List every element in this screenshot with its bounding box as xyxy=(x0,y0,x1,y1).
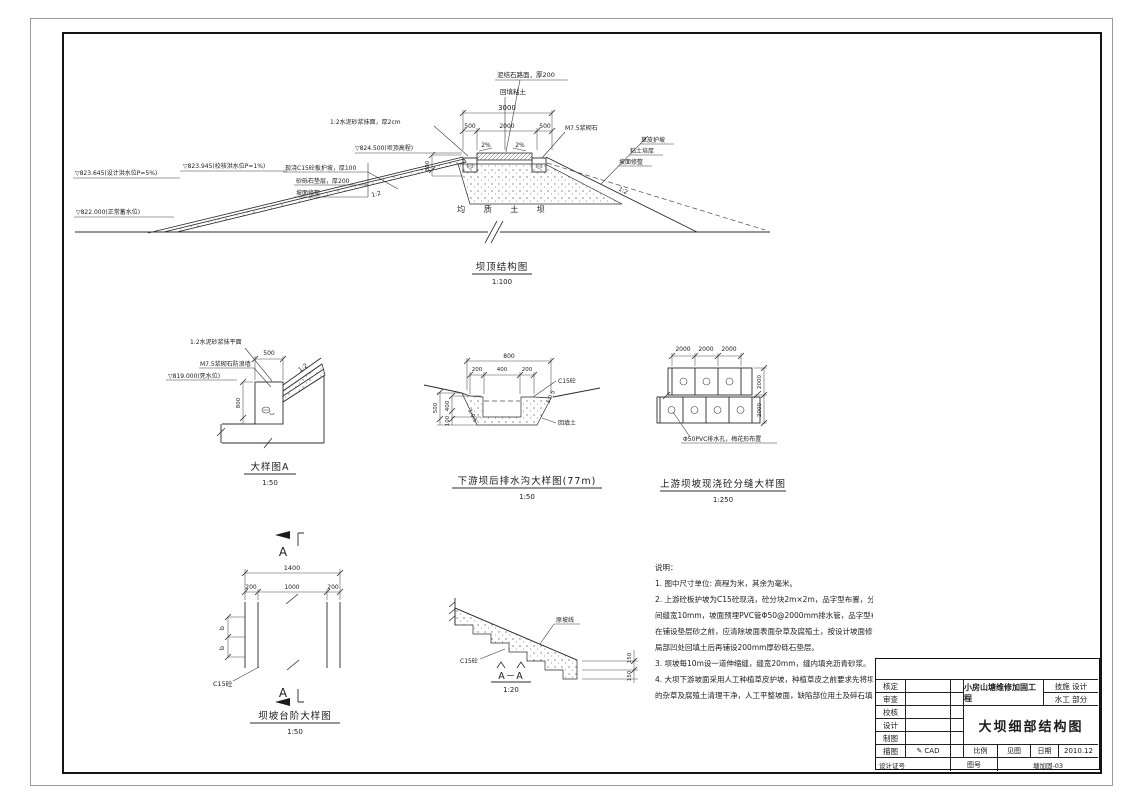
concrete-label: C15砼 xyxy=(558,377,576,385)
crest-road-surface xyxy=(477,153,532,160)
concrete-label: C15砼 xyxy=(213,679,233,688)
check-flood-level-label: ▽823.945(校核洪水位P=1%) xyxy=(183,162,265,170)
notes-line: 局部凹处回填土后再铺设200mm厚砂砾石垫层。 xyxy=(655,640,873,656)
cad-cell: ✎ CAD xyxy=(906,745,951,758)
road-surface-label: 泥结石路面，厚200 xyxy=(497,70,555,79)
dim-400-label: 400 xyxy=(497,367,508,373)
normal-level-label: ▽822.000(正常蓄水位) xyxy=(76,208,140,216)
slab-row-lower xyxy=(657,397,760,423)
drain-hole xyxy=(668,407,675,414)
dim-100-label: 100 xyxy=(445,415,451,426)
narrow-cell xyxy=(951,732,964,745)
wall-height-dim-label: 800 xyxy=(425,160,431,171)
row-label-shencha: 审查 xyxy=(876,693,906,706)
slope-ratio-label: 1:2 xyxy=(297,362,309,373)
gravel-cushion-label: 砂砾石垫层，厚200 xyxy=(296,177,350,185)
drain-hole xyxy=(737,407,744,414)
drain-hole xyxy=(703,378,710,385)
grass-protection-label: 草皮护坡 xyxy=(641,136,665,144)
dim-2000-1: 2000 xyxy=(675,346,690,353)
concrete-label: C15砼 xyxy=(460,657,478,665)
dim-200l-label: 200 xyxy=(245,584,257,591)
dim-150-1: 150 xyxy=(627,652,633,663)
dim-200r-label: 200 xyxy=(327,584,339,591)
leader-line xyxy=(233,667,259,681)
detail-a-title: 大样图A xyxy=(251,461,290,473)
dim-500-left-label: 500 xyxy=(464,123,476,130)
row-label-sheji: 设计 xyxy=(876,719,906,732)
downstream-slope-ratio-label: 1:2 xyxy=(617,186,629,197)
titleblock-top-strip xyxy=(876,659,1098,680)
drain-hole xyxy=(714,407,721,414)
break-marks xyxy=(217,428,272,448)
original-slope-label: 原坡线 xyxy=(556,616,574,624)
drain-hole xyxy=(691,407,698,414)
dim-3000-label: 3000 xyxy=(498,104,516,112)
backfill-clay-label: 回填粘土 xyxy=(500,87,527,96)
mortar-face-label: 1:2水泥砂浆抹面，厚2cm xyxy=(330,118,401,126)
row-label-heding: 核定 xyxy=(876,680,906,693)
wave-wall-label: M7.5浆砌石防浪墙 xyxy=(200,360,251,368)
slab-protection-label: 现浇C15砼板护坡，厚100 xyxy=(285,164,356,172)
leader-line xyxy=(673,412,690,437)
slab-joint-scale: 1:250 xyxy=(713,496,733,504)
narrow-cell xyxy=(951,680,964,693)
slab-joint-drawing: 2000 2000 2000 2000 2000 Φ50PVC排水孔，梅花形布置… xyxy=(657,346,786,504)
dead-water-level-label: ▽819.000(死水位) xyxy=(168,372,220,380)
notes-line: 2. 上游砼板护坡为C15砼现浇，砼分块2m×2m，品字型布置，分块 xyxy=(655,592,873,608)
dim-200l-label: 200 xyxy=(472,367,483,373)
wave-wall-section xyxy=(255,382,283,424)
narrow-cell xyxy=(951,719,964,732)
notes-line: 间缝宽10mm，坡面预埋PVC管Φ50@2000mm排水管，品字型布置， xyxy=(655,608,873,624)
dim-500-right-label: 500 xyxy=(539,123,551,130)
narrow-cell xyxy=(951,745,964,758)
steps-section-scale: 1:20 xyxy=(503,686,519,694)
dim-500-label: 500 xyxy=(263,350,275,357)
dim-150-2: 150 xyxy=(627,670,633,681)
dim-2000-3: 2000 xyxy=(721,346,736,353)
signature-cell xyxy=(906,719,951,732)
dim-2000-2: 2000 xyxy=(698,346,713,353)
crest-section-scale: 1:100 xyxy=(492,278,512,286)
detail-a-scale: 1:50 xyxy=(262,479,278,487)
notes-heading: 说明： xyxy=(655,560,873,576)
crest-section-title: 坝顶结构图 xyxy=(476,261,529,273)
signature-cell xyxy=(906,706,951,719)
notes-line: 在铺设垫层砂之前，应清除坡面表面杂草及腐殖土，按设计坡面修整， xyxy=(655,624,873,640)
steps-section-drawing: 原坡线 C15砼 150 150 A－A 1:20 xyxy=(449,598,638,694)
dim-1000-label: 1000 xyxy=(284,584,299,591)
sheet-title: 大坝细部结构图 xyxy=(964,706,1098,745)
project-name: 小房山塘维修加固工程 xyxy=(964,680,1044,706)
signature-cell xyxy=(906,732,951,745)
steps-plan-scale: 1:50 xyxy=(287,728,303,736)
date-value: 2010.12 xyxy=(1059,745,1098,758)
ground-lines xyxy=(424,385,600,397)
section-mark-bottom-bar xyxy=(298,689,304,702)
dim-2000-label: 2000 xyxy=(499,123,514,130)
drain-detail-scale: 1:50 xyxy=(519,493,535,501)
clay-thickening-label: 粘土培厚 xyxy=(630,147,654,155)
notes-line: 的杂草及腐殖土清理干净，人工平整坡面，缺陷部位用土及碎石填补。 xyxy=(655,688,873,704)
slope-2pct-right-label: 2% xyxy=(515,142,525,149)
row-label-jiaohe: 校核 xyxy=(876,706,906,719)
dam-body-label: 均 质 土 坝 xyxy=(457,204,553,214)
date-label: 日期 xyxy=(1031,745,1059,758)
slope-right-label: 1:0.5 xyxy=(545,389,557,405)
crest-section-drawing: 泥结石路面，厚200 回填粘土 3000 500 2000 500 800 1:… xyxy=(73,70,770,286)
stage-cell: 技施 设计 xyxy=(1044,680,1098,693)
upstream-slope-ratio-label: 1:2 xyxy=(371,190,382,199)
steps-plan-drawing: A 1400 200 1000 200 b b C15砼 A 坝坡台阶大样图 1… xyxy=(213,531,343,736)
dimension-lines xyxy=(243,359,283,424)
cad-label: CAD xyxy=(924,747,939,755)
backfill-label: 回填土 xyxy=(558,419,576,427)
section-cell: 水工 部分 xyxy=(1044,693,1098,706)
drawing-no-value: 塘加固-03 xyxy=(998,758,1098,771)
steps-section-title: A－A xyxy=(498,671,524,682)
edge-hatch-marks xyxy=(449,602,455,621)
section-mark-top-bar xyxy=(298,533,304,546)
dim-2000-r1: 2000 xyxy=(757,375,763,389)
title-block: 核定 审查 校核 设计 制图 描图 ✎ CAD 小房山塘维修加固工程 技施 设计… xyxy=(875,658,1100,770)
cert-no-label: 设计证号 xyxy=(876,758,951,771)
scale-label: 比例 xyxy=(964,745,998,758)
dim-1400-label: 1400 xyxy=(284,564,301,572)
slope-trim-left-label: 坡面修整 xyxy=(296,189,320,197)
mortar-top-label: 1:2水泥砂浆抹平面 xyxy=(190,338,242,346)
crest-elevation-label: ▽824.500(坝顶高程) xyxy=(355,144,413,152)
section-arrow-top xyxy=(275,531,290,539)
row-label-miaotu: 描图 xyxy=(876,745,906,758)
slope-trim-right-label: 坡面修整 xyxy=(619,158,643,166)
steps-plan-title: 坝坡台阶大样图 xyxy=(258,710,332,722)
signature-cell xyxy=(906,680,951,693)
dim-200r-label: 200 xyxy=(522,367,533,373)
break-marks xyxy=(286,594,299,670)
section-title-marks xyxy=(497,662,525,668)
dim-400v-label: 400 xyxy=(445,400,451,411)
design-flood-level-label: ▽823.645(设计洪水位P=5%) xyxy=(75,169,157,177)
notes-block: 说明： 1. 图中尺寸单位: 高程为米，其余为毫米。 2. 上游砼板护坡为C15… xyxy=(655,560,873,704)
plotter-pen-icon: ✎ xyxy=(917,747,923,755)
detail-a-drawing: 500 800 1:2水泥砂浆抹平面 M7.5浆砌石防浪墙 ▽819.000(死… xyxy=(166,338,325,487)
step-edge-lines xyxy=(245,602,340,668)
slab-joint-title: 上游坝坡现浇砼分缝大样图 xyxy=(660,478,786,490)
notes-line: 3. 坝坡每10m设一道伸缩缝，缝宽20mm，缝内填充沥青砂浆。 xyxy=(655,656,873,672)
crest-gravel-stipple xyxy=(458,164,622,204)
drain-hole xyxy=(680,378,687,385)
scale-value: 见图 xyxy=(998,745,1031,758)
drawing-no-label: 图号 xyxy=(951,758,998,771)
pvc-pipe-label: Φ50PVC排水孔，梅花形布置 xyxy=(683,435,761,443)
section-letter-bottom: A xyxy=(279,686,288,700)
drain-hole xyxy=(726,378,733,385)
dim-b2-label: b xyxy=(218,646,226,650)
signature-cell xyxy=(906,693,951,706)
dim-800-label: 800 xyxy=(503,353,515,360)
section-letter-top: A xyxy=(279,545,288,559)
notes-line: 1. 图中尺寸单位: 高程为米，其余为毫米。 xyxy=(655,576,873,592)
notes-line: 4. 大坝下游坡面采用人工种植草皮护坡，种植草皮之前要求先将坝面 xyxy=(655,672,873,688)
narrow-cell xyxy=(951,693,964,706)
dim-500-label: 500 xyxy=(433,402,439,413)
slab-lower-dividers xyxy=(660,397,752,423)
slope-2pct-left-label: 2% xyxy=(481,142,491,149)
row-label-zhitu: 制图 xyxy=(876,732,906,745)
slab-upper-dividers xyxy=(672,368,741,395)
masonry-label: M7.5浆砌石 xyxy=(565,124,598,132)
drain-detail-drawing: 800 200 400 200 500 400 100 1:0.5 1:0.5 … xyxy=(424,353,602,501)
dim-b1-label: b xyxy=(218,626,226,630)
narrow-cell xyxy=(951,706,964,719)
dim-800-label: 800 xyxy=(236,397,242,408)
dim-2000-r2: 2000 xyxy=(757,403,763,417)
drain-detail-title: 下游坝后排水沟大样图(77m) xyxy=(458,475,597,487)
drawing-sheet: 泥结石路面，厚200 回填粘土 3000 500 2000 500 800 1:… xyxy=(0,0,1131,800)
wall-rock-symbol xyxy=(262,407,274,415)
